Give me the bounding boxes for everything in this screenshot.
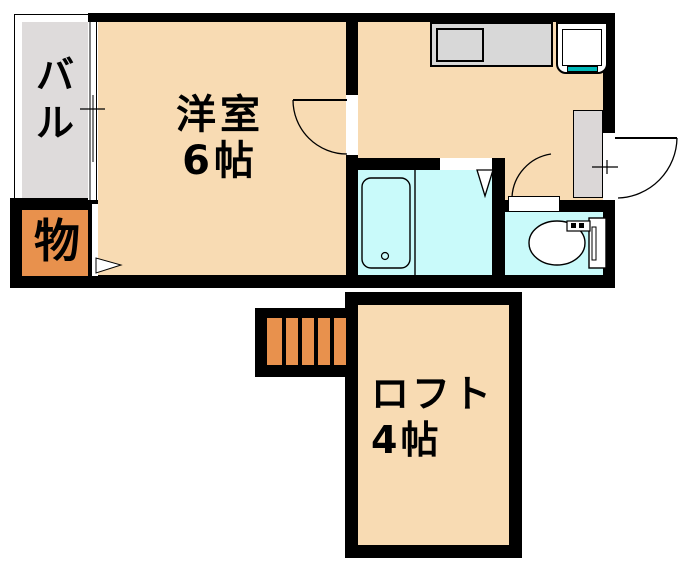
toilet-controls xyxy=(567,221,590,231)
loft-label: ロフト 4帖 xyxy=(371,372,521,463)
storage-label: 物 xyxy=(27,215,87,268)
toilet-button xyxy=(579,223,584,228)
balcony-label: バ ル xyxy=(26,52,84,147)
balcony-label-char: ル xyxy=(26,100,84,148)
loft-name: ロフト xyxy=(371,372,521,418)
loft-size: 4帖 xyxy=(371,418,521,464)
entrance-door-arc xyxy=(618,138,677,198)
bathtub xyxy=(362,178,410,268)
floor-plan: 洋室 6帖 バ ル 物 ロフト 4帖 xyxy=(0,0,684,573)
toilet-button xyxy=(571,223,576,228)
bath-drain-icon xyxy=(382,253,389,260)
closet-arrow xyxy=(96,258,121,273)
western-room-size: 6帖 xyxy=(130,138,310,184)
western-room-label: 洋室 6帖 xyxy=(130,92,310,184)
balcony-label-char: バ xyxy=(26,52,84,100)
toilet-door-arc xyxy=(512,154,551,197)
fixture-overlay xyxy=(0,0,684,573)
bathroom-folding-door xyxy=(477,170,493,196)
western-room-name: 洋室 xyxy=(130,92,310,138)
